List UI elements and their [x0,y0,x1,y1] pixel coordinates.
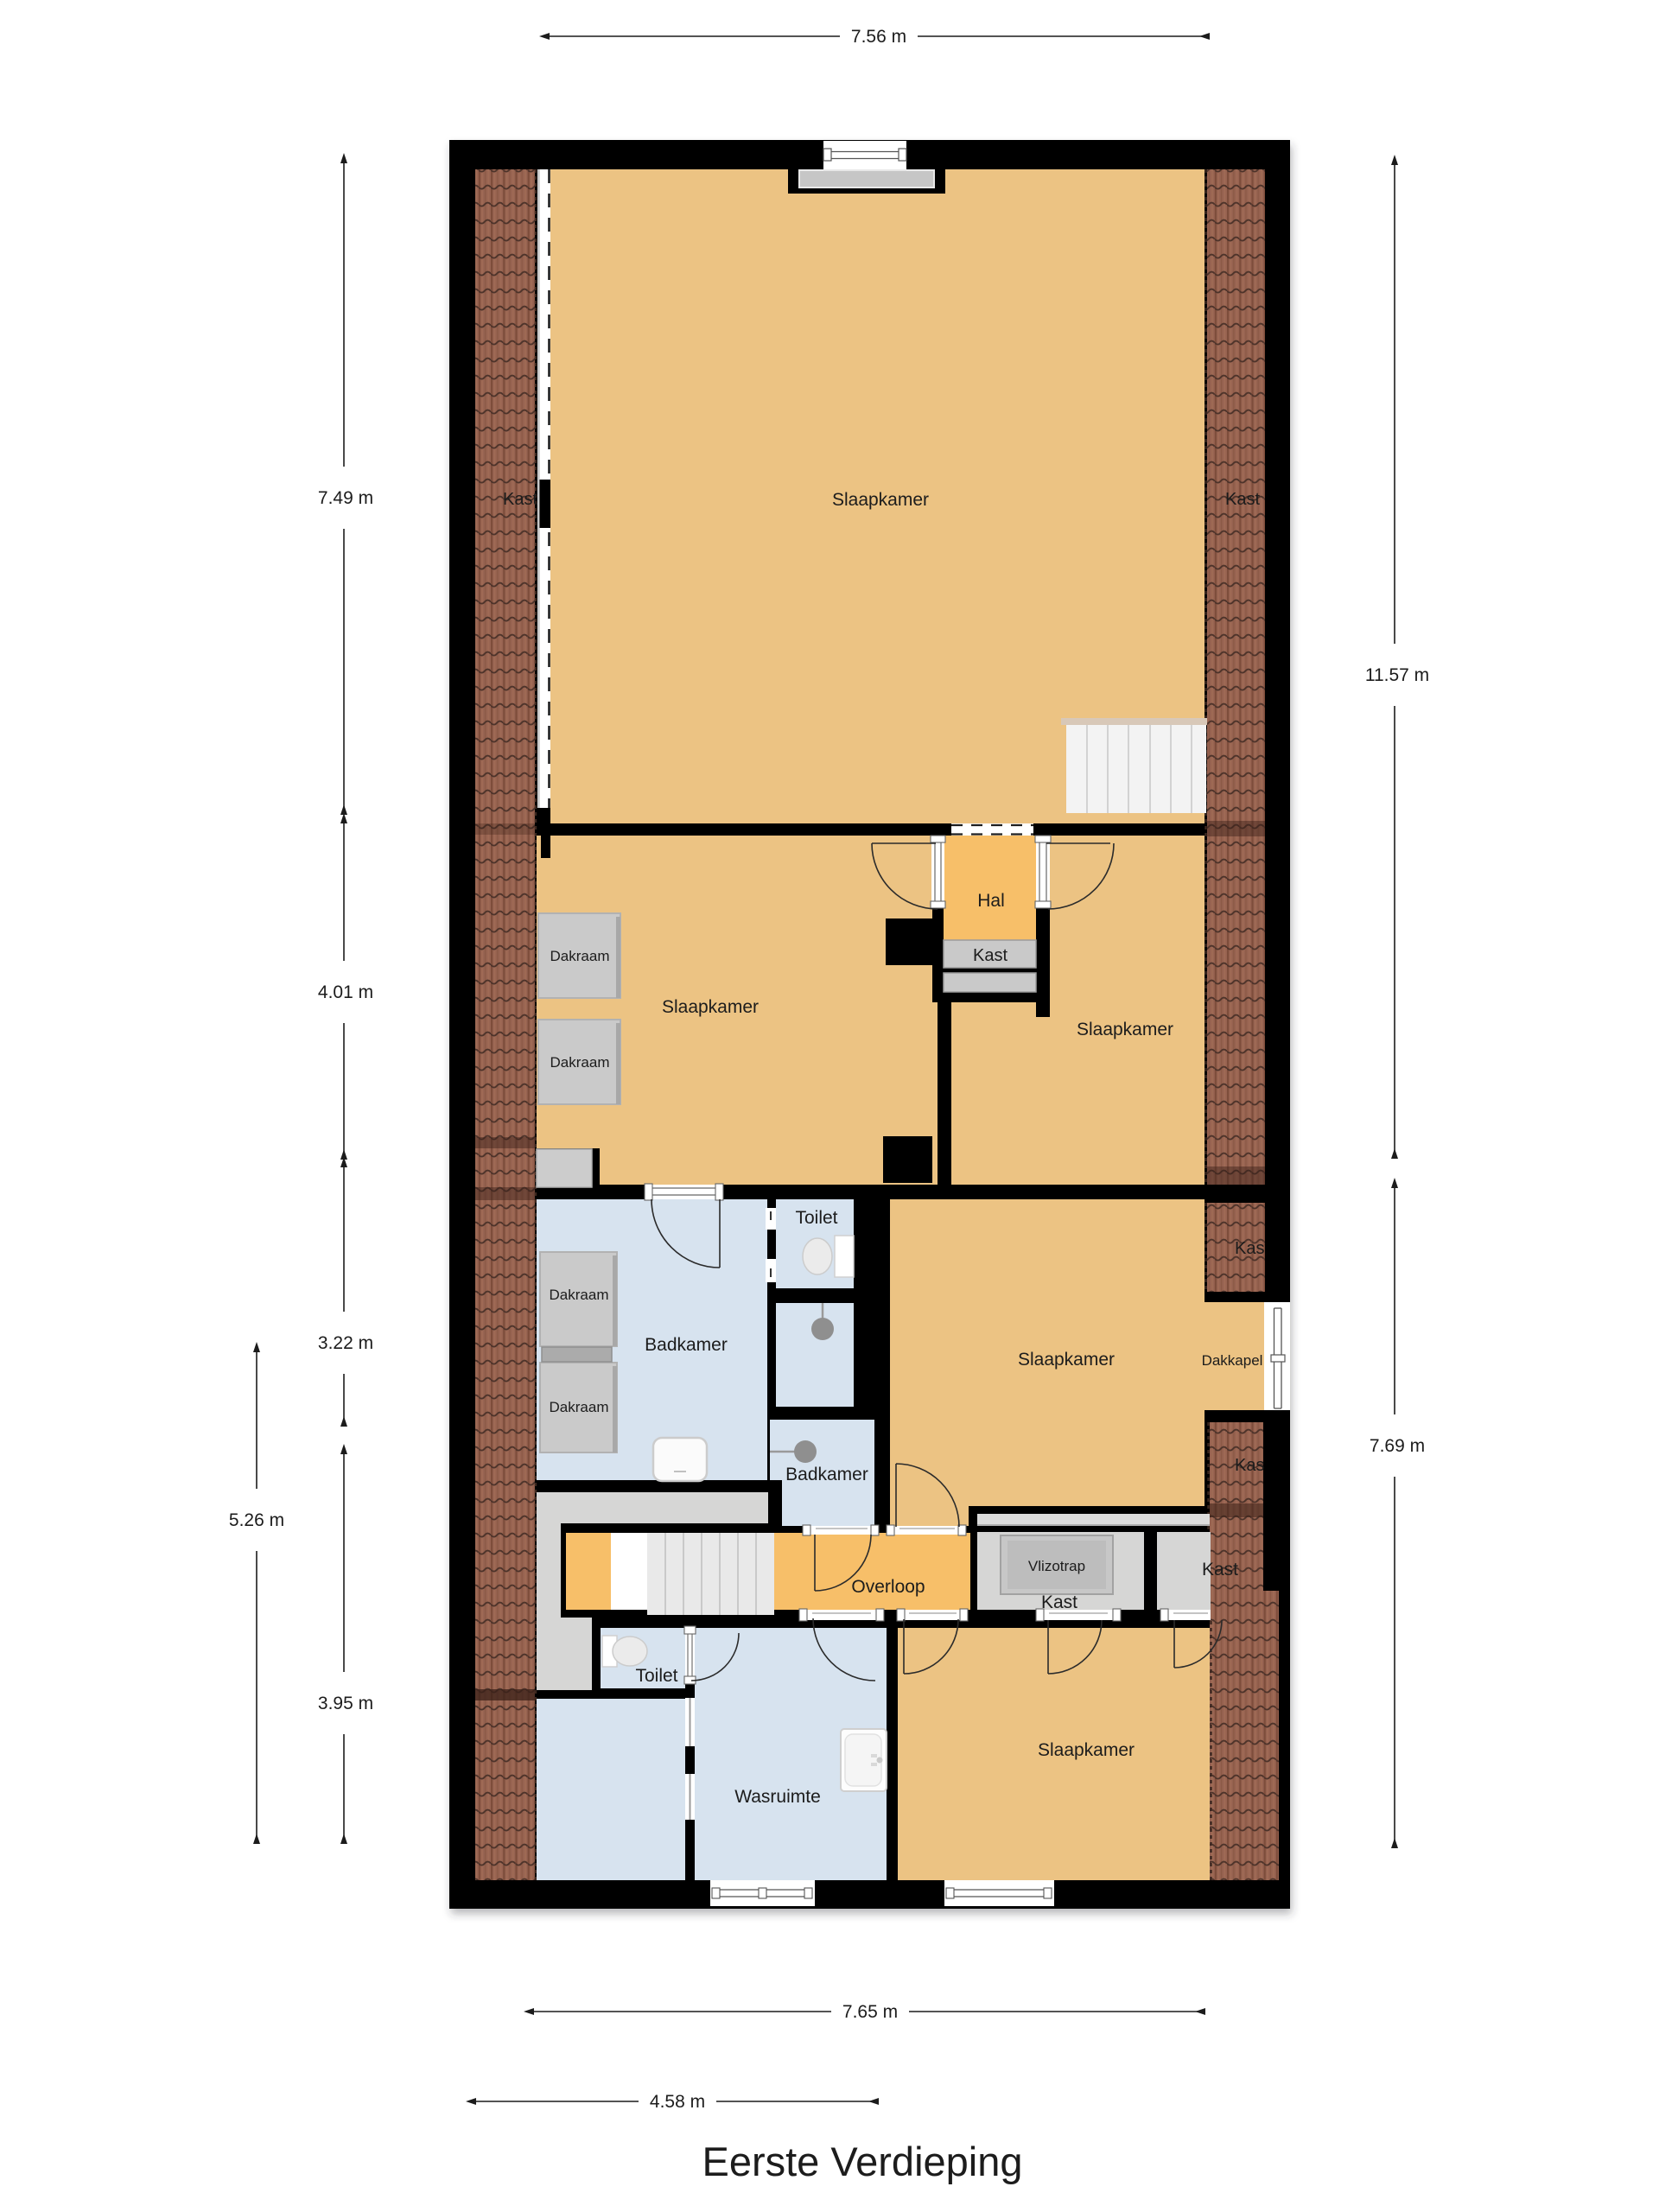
svg-text:7.65 m: 7.65 m [842,2002,898,2022]
svg-text:Kast: Kast [503,490,537,509]
svg-text:Wasruimte: Wasruimte [734,1787,821,1807]
svg-text:Kast: Kast [973,946,1007,965]
svg-text:Kast: Kast [1225,490,1260,509]
svg-text:Toilet: Toilet [795,1208,837,1228]
svg-text:Badkamer: Badkamer [645,1335,728,1355]
svg-text:Dakraam: Dakraam [550,1054,610,1071]
svg-text:3.22 m: 3.22 m [318,1333,373,1353]
svg-text:Slaapkamer: Slaapkamer [662,997,759,1017]
svg-text:4.01 m: 4.01 m [318,982,373,1002]
svg-text:Slaapkamer: Slaapkamer [832,490,929,510]
svg-text:Hal: Hal [977,891,1005,911]
svg-text:Kast: Kast [1235,1456,1269,1475]
svg-text:Slaapkamer: Slaapkamer [1038,1740,1135,1760]
svg-text:Dakkapel: Dakkapel [1202,1352,1263,1369]
svg-text:Slaapkamer: Slaapkamer [1077,1020,1173,1039]
svg-text:Slaapkamer: Slaapkamer [1018,1350,1115,1370]
svg-text:Eerste Verdieping: Eerste Verdieping [702,2139,1022,2184]
svg-text:Vlizotrap: Vlizotrap [1028,1558,1085,1574]
svg-text:Badkamer: Badkamer [785,1465,868,1484]
svg-text:Dakraam: Dakraam [550,948,610,964]
svg-text:4.58 m: 4.58 m [650,2092,705,2112]
svg-text:Kast: Kast [1235,1239,1269,1258]
svg-text:11.57 m: 11.57 m [1365,665,1429,685]
svg-text:7.49 m: 7.49 m [318,488,373,508]
svg-text:Kast: Kast [1202,1560,1238,1580]
svg-text:7.69 m: 7.69 m [1370,1436,1425,1456]
svg-text:Dakraam: Dakraam [550,1287,609,1303]
svg-text:Dakraam: Dakraam [550,1399,609,1415]
svg-text:3.95 m: 3.95 m [318,1694,373,1713]
svg-text:Kast: Kast [1041,1592,1077,1612]
svg-text:5.26 m: 5.26 m [229,1510,284,1530]
svg-text:7.56 m: 7.56 m [851,27,906,47]
svg-text:Toilet: Toilet [635,1666,677,1686]
svg-text:Overloop: Overloop [851,1577,925,1597]
